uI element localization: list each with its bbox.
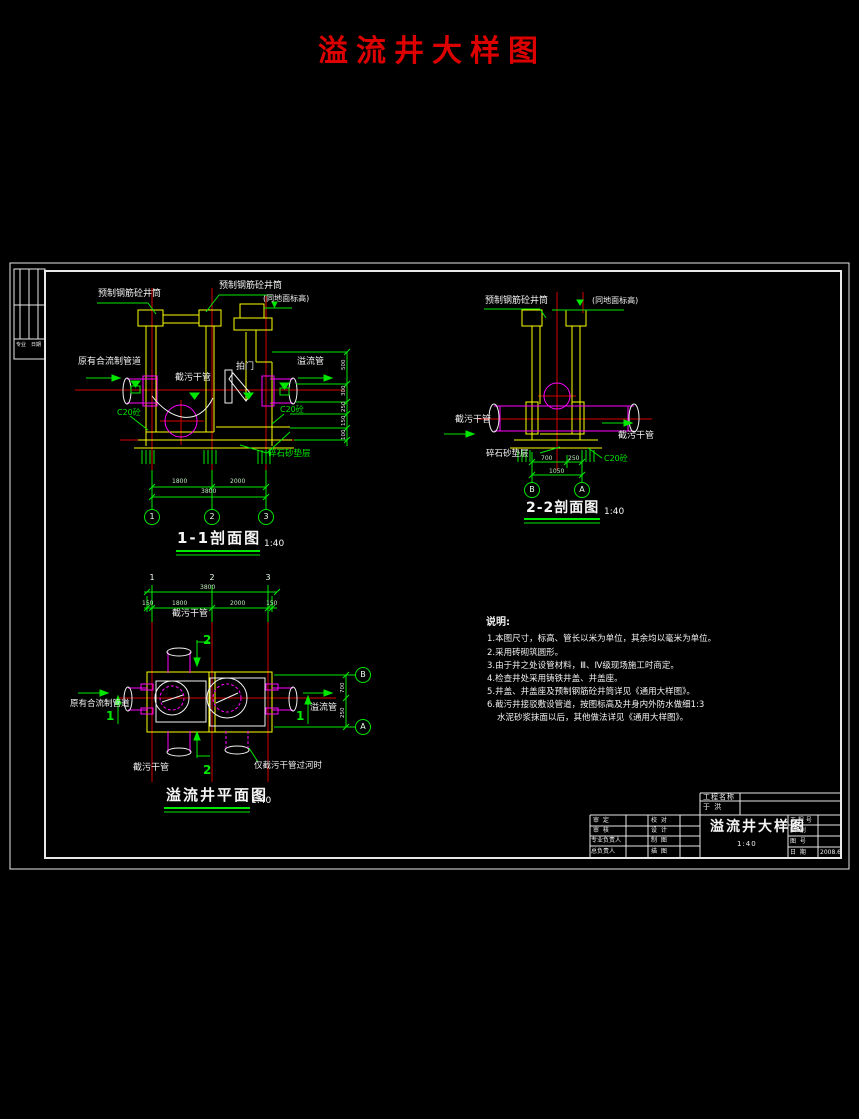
tb-row2-l1: 审 核 bbox=[593, 828, 610, 834]
note-line-5: 5.井盖、井盖座及预制钢筋砼井筒详见《通用大样图》。 bbox=[487, 688, 695, 697]
label-intercept-left-22: 截污干管 bbox=[455, 416, 491, 425]
tb-project-value: 于 洪 bbox=[703, 804, 722, 811]
plan-section-1-right: 1 bbox=[296, 710, 304, 722]
tb-right3-label: 图 号 bbox=[790, 839, 807, 845]
label-ground-level-22: (同地面标高) bbox=[592, 297, 638, 305]
plan-grid-B: B bbox=[356, 671, 371, 679]
label-intercept-right-22: 截污干管 bbox=[618, 432, 654, 441]
tb-right1-label: 工 程 号 bbox=[790, 818, 812, 824]
label-c20-22: C20砼 bbox=[604, 455, 628, 463]
view-title-2-2: 2-2剖面图 bbox=[526, 501, 599, 515]
vdim-5: 100 bbox=[342, 430, 348, 441]
notes-heading: 说明: bbox=[486, 618, 510, 628]
plan-label-note: 仅截污干管过河时 bbox=[254, 762, 322, 771]
label-intercept-pipe: 截污干管 bbox=[175, 374, 211, 383]
label-c20-right: C20砼 bbox=[280, 406, 304, 414]
dim-total-1050: 1050 bbox=[549, 469, 564, 475]
label-c20-left: C20砼 bbox=[117, 409, 141, 417]
plan-section-2-top: 2 bbox=[203, 634, 211, 646]
dim-1800: 1800 bbox=[172, 479, 187, 485]
label-existing-pipe: 原有合流制管道 bbox=[78, 358, 141, 367]
plan-label-intercept-bottom: 截污干管 bbox=[133, 764, 169, 773]
sign-strip-col2: 日期 bbox=[31, 343, 41, 348]
tb-right2-label: 图 别 bbox=[790, 828, 807, 834]
view-scale-plan: 1:40 bbox=[251, 797, 271, 806]
grid-bubble-A: A bbox=[575, 486, 590, 494]
dim-700: 700 bbox=[541, 456, 552, 462]
grid-bubble-B: B bbox=[525, 486, 540, 494]
plan-grid-2: 2 bbox=[205, 574, 220, 582]
note-line-6: 6.截污井接驳敷设管道，按图标高及井身内外防水做细1:3 bbox=[487, 701, 704, 710]
structure-section-2-2 bbox=[510, 310, 602, 448]
cad-linework bbox=[0, 0, 859, 1119]
label-flap-gate: 拍门 bbox=[236, 363, 254, 372]
note-line-7: 水泥砂浆抹面以后，其他做法详见《通用大样图》。 bbox=[497, 714, 688, 723]
tb-row1-l1: 审 定 bbox=[593, 818, 610, 824]
plan-section-2-bottom: 2 bbox=[203, 764, 211, 776]
grid-bubble-1: 1 bbox=[145, 513, 160, 521]
label-overflow-pipe: 溢流管 bbox=[297, 358, 324, 367]
vdim-1: 500 bbox=[342, 360, 348, 371]
note-line-3: 3.由于井之处设管材料，Ⅲ、Ⅳ级现场施工时商定。 bbox=[487, 662, 679, 671]
plan-rdim-250: 250 bbox=[341, 708, 347, 719]
grid-bubble-3: 3 bbox=[259, 513, 274, 521]
label-precast-shaft-mid: 预制钢筋砼井筒 bbox=[219, 282, 282, 291]
view-scale-1-1: 1:40 bbox=[264, 540, 284, 549]
label-gravel-22: 碎石砂垫层 bbox=[486, 450, 529, 459]
drawing-frame bbox=[10, 263, 849, 869]
vdim-4: 150 bbox=[342, 416, 348, 427]
plan-grid-3: 3 bbox=[261, 574, 276, 582]
tb-project-label: 工程名称 bbox=[703, 794, 735, 801]
tb-right4-label: 日 期 bbox=[790, 850, 807, 856]
vdim-3: 250 bbox=[342, 402, 348, 413]
note-line-2: 2.采用砖砌筑圆形。 bbox=[487, 649, 563, 658]
plan-dim-m2: 150 bbox=[266, 601, 277, 607]
tb-row3-l2: 制 图 bbox=[651, 838, 668, 844]
cad-drawing-page: 溢流井大样图 专业 日期 预制钢筋砼井筒 预制钢筋砼井筒 (同地面标高) 原有合… bbox=[0, 0, 859, 1119]
view-scale-2-2: 1:40 bbox=[604, 508, 624, 517]
label-ground-level: (同地面标高) bbox=[263, 295, 309, 303]
plan-grid-A: A bbox=[356, 723, 371, 731]
dim-250: 250 bbox=[568, 456, 579, 462]
plan-grid-1: 1 bbox=[145, 574, 160, 582]
plan-rdim-700: 700 bbox=[341, 683, 347, 694]
note-line-4: 4.检查井处采用铸铁井盖、井盖座。 bbox=[487, 675, 623, 684]
plan-dim-seg1: 1800 bbox=[172, 601, 187, 607]
plan-label-existing-pipe: 原有合流制管道 bbox=[70, 700, 130, 709]
vdim-2: 300 bbox=[342, 386, 348, 397]
tb-row1-l2: 校 对 bbox=[651, 818, 668, 824]
sign-strip-col1: 专业 bbox=[16, 343, 26, 348]
label-precast-shaft-left: 预制钢筋砼井筒 bbox=[98, 290, 161, 299]
plan-dim-m1: 150 bbox=[142, 601, 153, 607]
tb-row2-l2: 设 计 bbox=[651, 828, 668, 834]
label-precast-shaft-22: 预制钢筋砼井筒 bbox=[485, 297, 548, 306]
view-title-1-1: 1-1剖面图 bbox=[177, 531, 261, 546]
tb-row4-l1: 总负责人 bbox=[591, 849, 615, 855]
dim-total-3800: 3800 bbox=[201, 489, 216, 495]
plan-dim-total: 3800 bbox=[200, 585, 215, 591]
note-line-1: 1.本图尺寸，标高、管长以米为单位，其余均以毫米为单位。 bbox=[487, 635, 716, 644]
plan-section-1-left: 1 bbox=[106, 710, 114, 722]
plan-label-overflow: 溢流管 bbox=[310, 704, 337, 713]
plan-dim-seg2: 2000 bbox=[230, 601, 245, 607]
plan-label-intercept-top: 截污干管 bbox=[172, 610, 208, 619]
tb-row4-l2: 描 图 bbox=[651, 849, 668, 855]
page-title: 溢流井大样图 bbox=[318, 37, 546, 67]
label-gravel-bed: 碎石砂垫层 bbox=[268, 450, 311, 459]
tb-right4-value: 2008.6 bbox=[820, 850, 841, 856]
tb-scale: 1:40 bbox=[737, 841, 757, 848]
tb-row3-l1: 专业负责人 bbox=[591, 838, 621, 844]
dim-2000: 2000 bbox=[230, 479, 245, 485]
grid-bubble-2: 2 bbox=[205, 513, 220, 521]
